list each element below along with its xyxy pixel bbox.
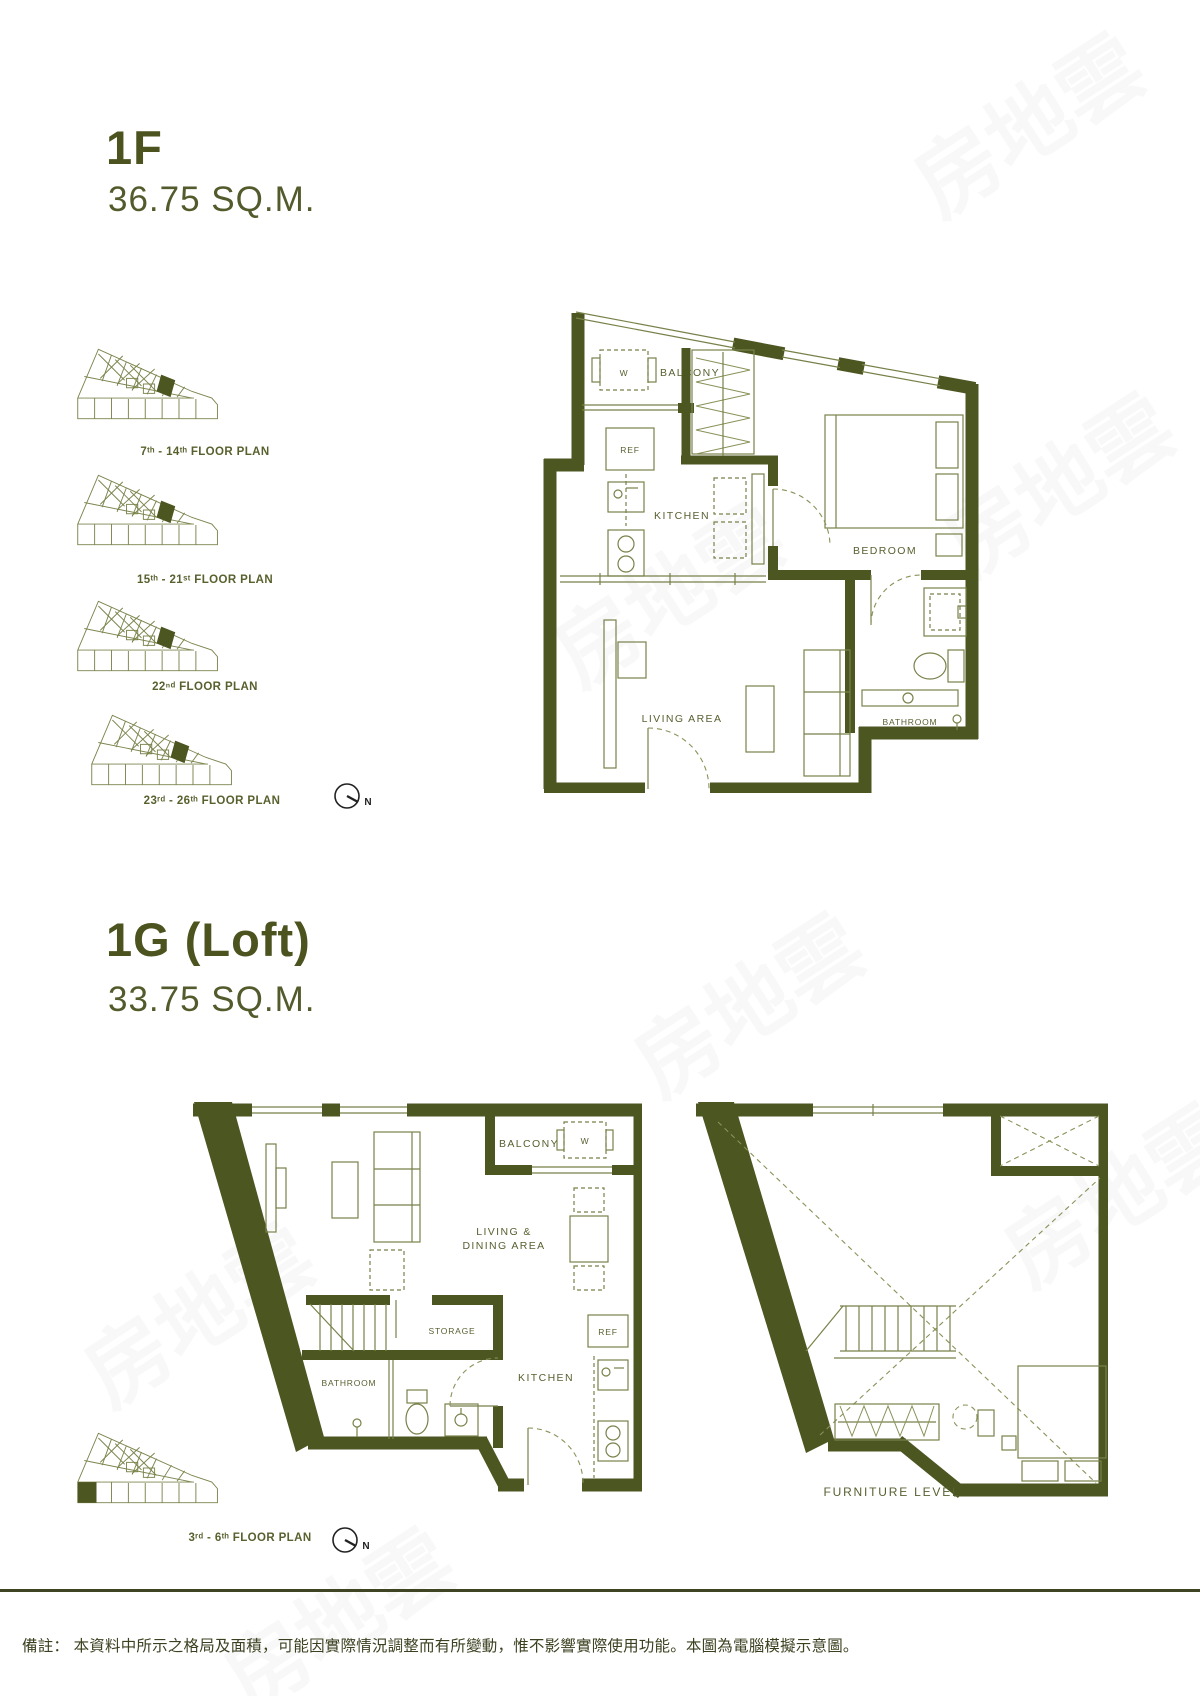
vanity-icon — [445, 1404, 478, 1436]
room-label-ref: REF — [598, 1327, 617, 1337]
outer-walls — [696, 1102, 1108, 1496]
floor-plan-sheet: 房地雲 房地雲 房地雲 房地雲 房地雲 房地雲 房地雲 1F 36.75 SQ.… — [0, 0, 1200, 1696]
coffee-table-icon — [332, 1162, 358, 1218]
room-label-bedroom: BEDROOM — [853, 545, 917, 557]
coffee-table-icon — [746, 686, 774, 752]
sofa-icon — [374, 1132, 420, 1242]
footnote: 備註： 本資料中所示之格局及面積，可能因實際情況調整而有所變動，惟不影響實際使用… — [22, 1634, 1182, 1656]
outer-walls — [193, 1102, 642, 1491]
floor-plan-1g-lower: BALCONY W LIVING & DINING AREA — [192, 1038, 642, 1503]
dining-set-icon — [714, 474, 764, 564]
toilet-icon — [406, 1390, 428, 1434]
unit-title-1g: 1G (Loft) — [106, 912, 311, 967]
room-label-living-1: LIVING & — [476, 1226, 532, 1238]
armchair-icon — [370, 1250, 404, 1290]
media-console-icon — [604, 620, 616, 768]
door-swing — [871, 575, 921, 625]
watermark: 房地雲 — [887, 1, 1164, 240]
drain-icon — [353, 1419, 361, 1437]
vanity-icon — [862, 690, 958, 706]
nightstand-icon — [1002, 1436, 1016, 1450]
floor-plan-1f: W BALCONY BEDROOM — [520, 288, 980, 793]
dresser-icon — [978, 1410, 994, 1436]
room-label-living: LIVING AREA — [642, 713, 723, 725]
room-label-living-2: DINING AREA — [462, 1240, 545, 1252]
nightstand-icon — [936, 534, 962, 556]
unit-area-1g: 33.75 SQ.M. — [108, 980, 315, 1020]
room-label-kitchen: KITCHEN — [518, 1372, 574, 1384]
room-label-ref: REF — [620, 445, 639, 455]
stool-icon — [953, 1405, 977, 1429]
dining-set-icon — [570, 1188, 608, 1290]
level-label: FURNITURE LEVEL — [823, 1485, 960, 1499]
room-label-bathroom: BATHROOM — [322, 1378, 377, 1388]
unit-title-1f: 1F — [106, 120, 163, 175]
north-compass: N — [330, 1524, 380, 1560]
divider-rule — [0, 1589, 1200, 1592]
room-label-bathroom: BATHROOM — [883, 717, 938, 727]
svg-text:N: N — [364, 797, 371, 808]
stove-icon — [598, 1421, 628, 1461]
balcony-edge — [576, 312, 735, 348]
void-cross — [1000, 1116, 1099, 1166]
door-swing — [773, 489, 830, 546]
stairs-icon — [806, 1306, 956, 1358]
bed-icon — [825, 415, 963, 528]
room-label-balcony: BALCONY — [499, 1138, 559, 1150]
room-label-kitchen: KITCHEN — [654, 510, 710, 522]
door-swing — [528, 1428, 583, 1483]
interior-walls — [768, 460, 972, 733]
key-plan-3-6 — [74, 1428, 224, 1508]
stairs-icon — [310, 1304, 386, 1351]
window — [813, 1104, 943, 1116]
media-console-icon — [266, 1144, 286, 1232]
slanted-wall — [194, 1102, 324, 1452]
interior-walls — [302, 1295, 503, 1448]
stove-icon — [608, 530, 644, 576]
north-compass: N — [332, 780, 382, 816]
floor-plan-1g-upper: FURNITURE LEVEL — [688, 1038, 1108, 1518]
room-label-washer: W — [620, 368, 629, 378]
toilet-icon — [914, 650, 964, 682]
room-label-washer: W — [581, 1136, 590, 1146]
shower-icon — [924, 588, 966, 636]
room-label-storage: STORAGE — [428, 1326, 475, 1336]
bed-icon — [1018, 1366, 1106, 1481]
unit-area-1f: 36.75 SQ.M. — [108, 180, 315, 220]
svg-text:N: N — [362, 1541, 369, 1552]
sink-icon — [598, 1360, 628, 1390]
key-plan-label: 3ʳᵈ - 6ᵗʰ FLOOR PLAN — [150, 1532, 350, 1544]
key-plan-label: 22ⁿᵈ FLOOR PLAN — [105, 681, 305, 693]
slanted-wall — [698, 1102, 834, 1453]
key-plan-label: 15ᵗʰ - 21ˢᵗ FLOOR PLAN — [105, 574, 305, 586]
tv-icon — [618, 642, 646, 678]
wardrobe-icon — [835, 1404, 939, 1440]
key-plan-23-26 — [88, 710, 238, 790]
key-plan-label: 23ʳᵈ - 26ᵗʰ FLOOR PLAN — [112, 795, 312, 807]
key-plan-15-21 — [74, 470, 224, 550]
door-swing — [450, 1358, 498, 1406]
door-swing — [648, 728, 709, 789]
key-plan-7-14 — [74, 344, 224, 424]
shower-screen — [389, 1360, 393, 1439]
window — [560, 573, 766, 585]
wardrobe-icon — [681, 348, 778, 464]
key-plan-label: 7ᵗʰ - 14ᵗʰ FLOOR PLAN — [105, 446, 305, 458]
sliding-door — [582, 405, 694, 410]
sofa-icon — [804, 650, 850, 776]
window — [532, 1167, 612, 1173]
key-plan-22 — [74, 596, 224, 676]
